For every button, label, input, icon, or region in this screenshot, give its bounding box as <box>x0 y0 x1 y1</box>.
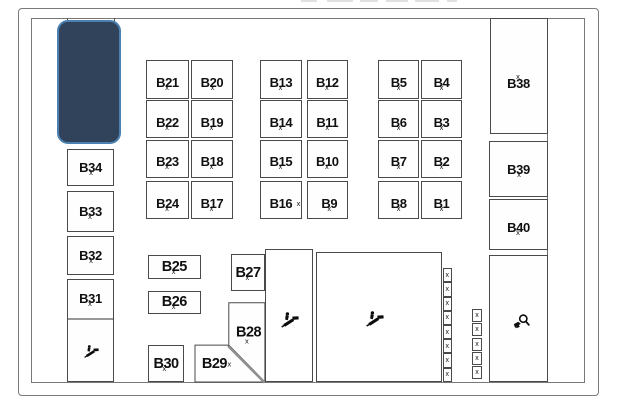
svg-text:x: x <box>228 360 232 369</box>
svg-text:B28: B28 <box>236 325 262 341</box>
svg-text:x: x <box>245 337 249 346</box>
svg-text:B29: B29 <box>202 356 228 372</box>
